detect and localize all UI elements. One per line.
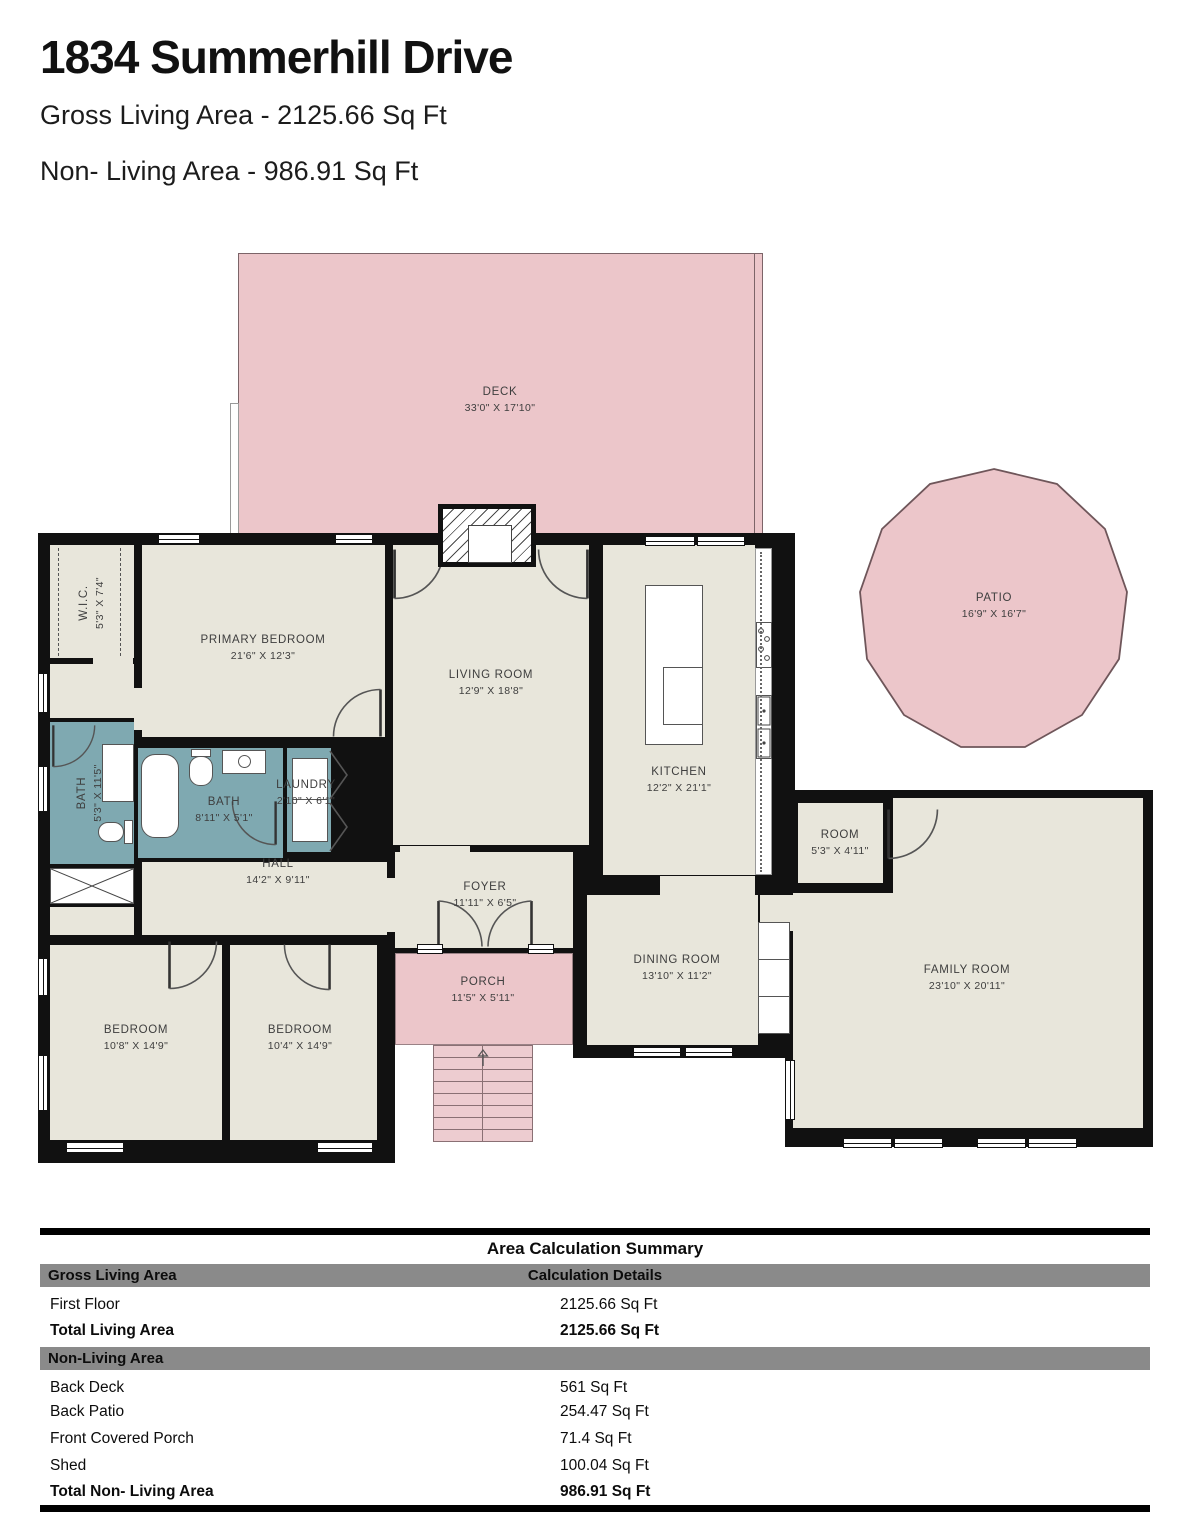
- window: [843, 1138, 892, 1148]
- primary-suite-opening: [134, 688, 144, 730]
- table-title: Area Calculation Summary: [40, 1237, 1150, 1261]
- row-label: Total Living Area: [40, 1322, 174, 1339]
- area-calculation-table: Area Calculation Summary Calculation Det…: [40, 1228, 1150, 1512]
- window: [894, 1138, 943, 1148]
- counter-edge-dotted: [760, 552, 762, 872]
- row-value: 986.91 Sq Ft: [560, 1480, 650, 1503]
- row-value: 254.47 Sq Ft: [560, 1399, 649, 1425]
- firebox: [468, 525, 512, 563]
- window: [335, 534, 373, 544]
- toilet: [189, 756, 213, 786]
- stove: [756, 622, 772, 668]
- door-arc-bedroom-left: [168, 940, 218, 990]
- row-label: Back Patio: [40, 1403, 124, 1420]
- room-label-porch: PORCH11'5" X 5'11": [452, 976, 515, 1004]
- table-row: Total Non- Living Area 986.91 Sq Ft: [40, 1480, 1150, 1505]
- row-value: 2125.66 Sq Ft: [560, 1292, 657, 1318]
- bathtub: [141, 754, 179, 838]
- sink-bowl: [238, 755, 251, 768]
- page-title: 1834 Summerhill Drive: [40, 30, 512, 84]
- row-value: 2125.66 Sq Ft: [560, 1318, 659, 1344]
- hall-west-floor: [50, 907, 134, 935]
- window: [158, 534, 200, 544]
- toilet-tank: [191, 749, 211, 757]
- door-arc-living-right: [537, 548, 589, 600]
- room-label-patio: PATIO16'9" X 16'7": [962, 592, 1027, 620]
- window: [633, 1047, 681, 1057]
- vanity-sink: [102, 744, 134, 802]
- fireplace: [438, 504, 536, 567]
- table-row: Front Covered Porch 71.4 Sq Ft: [40, 1426, 1150, 1453]
- stairs-up-arrow: [477, 1049, 489, 1067]
- row-value: 100.04 Sq Ft: [560, 1453, 649, 1479]
- room-label-bath-mid: BATH8'11" X 5'1": [195, 796, 253, 824]
- gross-living-area-subtitle: Gross Living Area - 2125.66 Sq Ft: [40, 100, 447, 131]
- window: [317, 1142, 373, 1153]
- window: [38, 673, 48, 713]
- room-label-primary-bedroom: PRIMARY BEDROOM21'6" X 12'3": [200, 634, 325, 662]
- deck-rail-notch: [230, 403, 239, 538]
- row-label: First Floor: [40, 1296, 120, 1313]
- closet-rod-dashes: [58, 548, 59, 656]
- wic-opening: [93, 656, 133, 666]
- suite-corridor-floor: [50, 664, 134, 718]
- window: [645, 536, 695, 546]
- kitchen-sink: [756, 695, 772, 759]
- table-row: Back Deck 561 Sq Ft: [40, 1372, 1150, 1399]
- room-label-deck: DECK33'0" X 17'10": [465, 386, 536, 414]
- closet-rod-dashes: [120, 548, 121, 656]
- table-bottom-border: [40, 1505, 1150, 1512]
- room-label-hall: HALL14'2" X 9'11": [246, 858, 310, 886]
- row-label: Total Non- Living Area: [40, 1483, 214, 1500]
- window: [66, 1142, 124, 1153]
- row-label: Front Covered Porch: [40, 1430, 194, 1447]
- window: [685, 1047, 733, 1057]
- table-row: Shed 100.04 Sq Ft: [40, 1453, 1150, 1480]
- kitchen-dining-opening: [660, 876, 755, 896]
- window: [785, 1060, 795, 1120]
- table-section-header: Non-Living Area: [40, 1347, 1150, 1370]
- room-label-family-room: FAMILY ROOM23'10" X 20'11": [924, 964, 1011, 992]
- room-label-laundry: LAUNDRY2'10" X 6'1": [276, 779, 336, 807]
- door-arc-primary: [332, 688, 382, 738]
- window: [38, 766, 48, 812]
- floorplan-page: 1834 Summerhill Drive Gross Living Area …: [0, 0, 1187, 1536]
- toilet: [98, 822, 124, 842]
- room-label-room: ROOM5'3" X 4'11": [811, 829, 869, 857]
- room-label-wic: W.I.C.5'3" X 7'4": [78, 577, 106, 629]
- door-arc-room: [887, 808, 939, 860]
- door-arc-bedroom-mid: [283, 943, 331, 991]
- room-label-bedroom-left: BEDROOM10'8" X 14'9": [104, 1024, 169, 1052]
- deck-edge-line: [754, 253, 755, 540]
- window: [38, 1055, 48, 1111]
- window: [38, 958, 48, 996]
- room-label-kitchen: KITCHEN12'2" X 21'1": [647, 766, 712, 794]
- toilet-tank: [124, 820, 133, 844]
- row-label: Back Deck: [40, 1379, 124, 1396]
- shelf-divider: [758, 996, 790, 997]
- window: [528, 944, 554, 954]
- living-foyer-opening: [400, 846, 470, 864]
- shower-pan: [50, 868, 134, 904]
- row-value: 71.4 Sq Ft: [560, 1426, 632, 1452]
- section-header-non-living: Non-Living Area: [40, 1350, 163, 1367]
- table-top-border: [40, 1228, 1150, 1235]
- door-arc-bath-left: [52, 724, 96, 768]
- row-label: Shed: [40, 1457, 86, 1474]
- room-label-dining-room: DINING ROOM13'10" X 11'2": [634, 954, 721, 982]
- window: [417, 944, 443, 954]
- built-in-shelves: [758, 922, 790, 1034]
- window: [697, 536, 745, 546]
- table-row: First Floor 2125.66 Sq Ft: [40, 1292, 1150, 1318]
- room-label-bedroom-mid: BEDROOM10'4" X 14'9": [268, 1024, 333, 1052]
- col-header-calculation-details: Calculation Details: [40, 1264, 1150, 1287]
- window: [1028, 1138, 1077, 1148]
- table-header-row: Calculation Details Gross Living Area: [40, 1264, 1150, 1287]
- room-label-foyer: FOYER11'11" X 6'5": [454, 881, 517, 909]
- room-label-living-room: LIVING ROOM12'9" X 18'8": [449, 669, 533, 697]
- hall-foyer-opening: [387, 878, 397, 932]
- table-row: Back Patio 254.47 Sq Ft: [40, 1399, 1150, 1426]
- table-row: Total Living Area 2125.66 Sq Ft: [40, 1318, 1150, 1344]
- window: [977, 1138, 1026, 1148]
- room-label-bath-left: BATH5'3" X 11'5": [76, 764, 104, 822]
- shelf-divider: [758, 959, 790, 960]
- kitchen-island-seating: [663, 667, 703, 725]
- non-living-area-subtitle: Non- Living Area - 986.91 Sq Ft: [40, 156, 418, 187]
